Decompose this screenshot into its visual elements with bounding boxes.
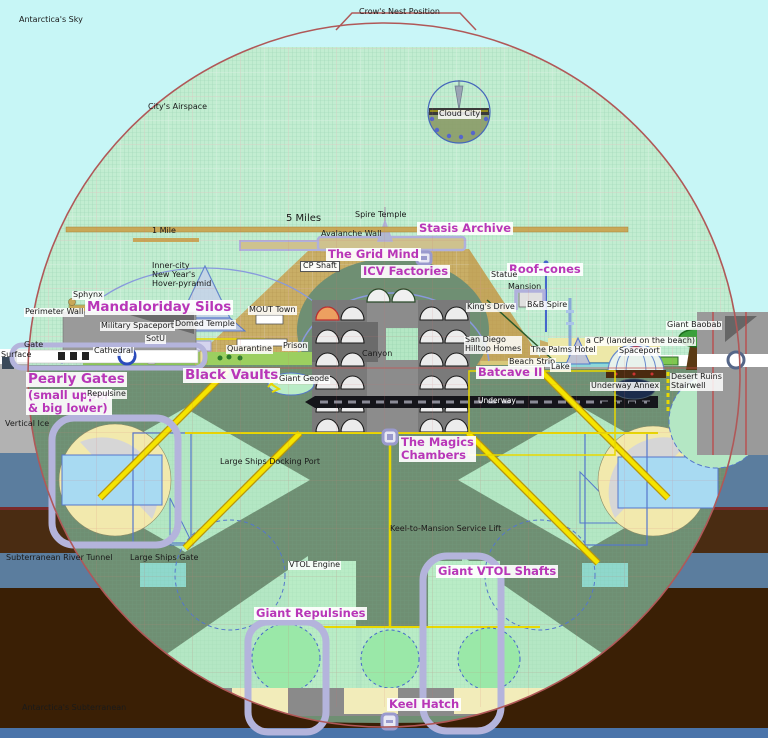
diagram-artwork (0, 0, 768, 738)
perimeter-wall-right-structure (697, 312, 768, 455)
cross-section-diagram: Antarctica's SkyCrow's Nest PositionCity… (0, 0, 768, 738)
crows-nest-bump-fill (336, 13, 476, 30)
small-upper-gate-ring (119, 348, 135, 364)
major-gridlines (28, 47, 740, 707)
right-gate-ring (728, 352, 744, 368)
